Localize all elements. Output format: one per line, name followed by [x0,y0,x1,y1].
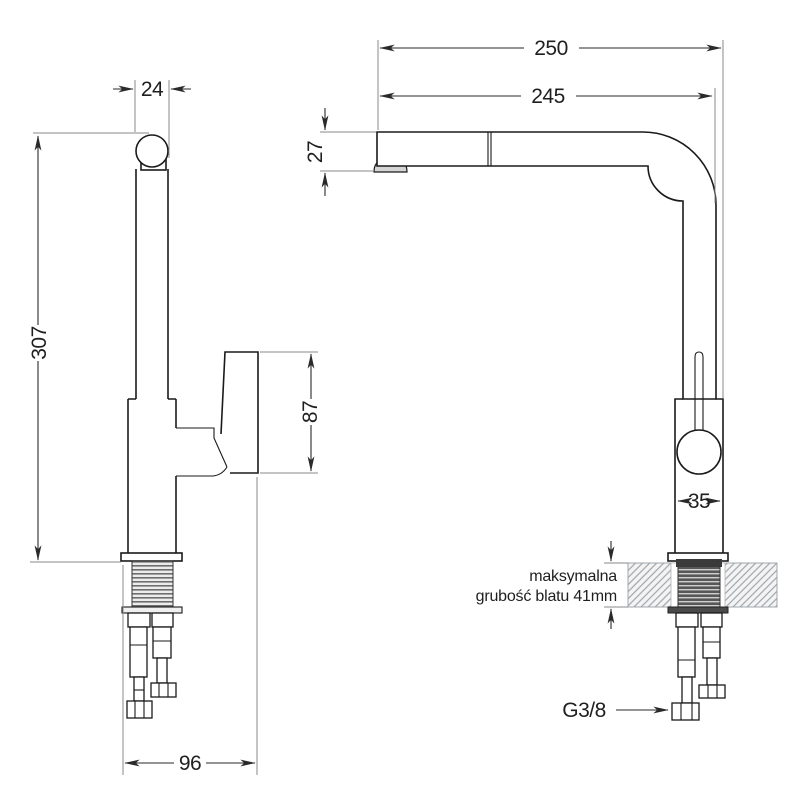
mounting-washer-side [122,607,182,613]
faucet-technical-drawing: 24 250 245 307 27 87 [0,0,800,800]
handle-knob-front [677,430,721,474]
side-view [121,135,258,718]
counter-note-line2: grubość blatu 41mm [476,588,617,605]
supply-hose-right-side [151,613,176,697]
dim-label-96: 96 [179,752,201,775]
dim-total-height-307: 307 [28,136,51,560]
dim-label-307: 307 [28,326,51,360]
dim-base-depth-96: 96 [125,752,255,775]
mounting-washer-front [668,607,728,613]
ext-lines-27 [320,132,376,171]
counter-note-line1: maksymalna [529,568,617,585]
dim-label-27: 27 [304,141,327,163]
dim-label-245: 245 [531,85,565,108]
hose-nut [699,685,725,698]
dim-label-35: 35 [688,490,710,513]
dim-spout-head-height-27: 27 [304,108,327,196]
front-view [374,132,777,720]
dim-label-87: 87 [299,401,322,423]
dim-body-diameter-35: 35 [678,490,720,513]
hose-nut-g38 [672,703,699,720]
supply-hose-right-front [699,613,725,698]
hose-nut [127,701,152,718]
supply-hose-left-front [672,613,699,720]
countertop-section [628,559,777,613]
base-gasket [676,559,722,567]
hose-nut [151,683,176,697]
dim-spout-diameter-24: 24 [113,78,191,101]
base-flange-side [121,553,182,561]
faucet-body-front [675,399,723,554]
drawing-sheet: 24 250 245 307 27 87 [0,0,800,800]
spout-end-cap [136,135,168,167]
spout-column [136,169,168,399]
dim-counter-thickness-41: maksymalna grubość blatu 41mm [476,541,618,629]
handle-lever-side [221,352,258,473]
mounting-thread-front [678,563,720,607]
faucet-body-side [128,399,176,553]
supply-hose-left-side [127,613,152,718]
dim-label-24: 24 [141,78,164,101]
spout-tube [377,132,716,399]
mounting-thread-side [132,561,173,607]
handle-joint [176,428,227,476]
dim-spout-reach-245: 245 [380,85,712,108]
callout-hose-thread-g38: G3/8 [562,699,668,722]
dim-label-250: 250 [534,37,568,60]
dim-total-reach-250: 250 [380,37,721,60]
dim-handle-height-87: 87 [299,354,322,471]
thread-label: G3/8 [562,699,606,722]
